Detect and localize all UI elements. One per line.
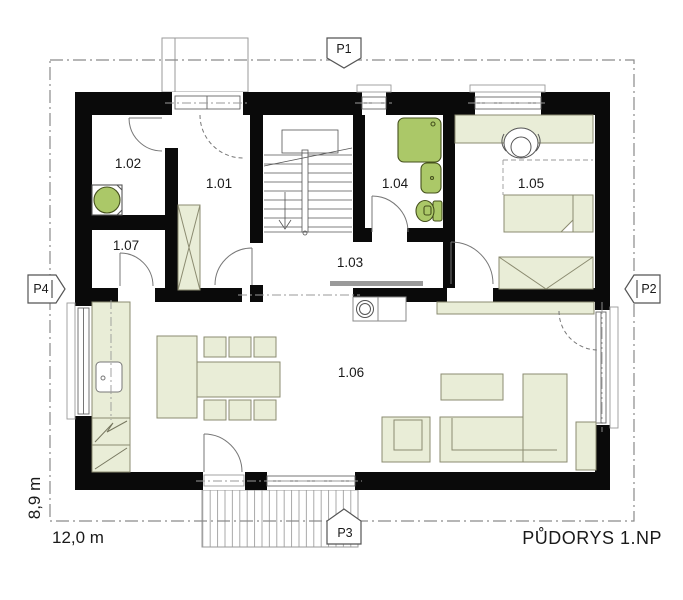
- room-label-101: 1.01: [206, 176, 232, 191]
- kitchen-tall-cabinets: [92, 418, 130, 472]
- room-label-105: 1.05: [518, 176, 544, 191]
- toilet: [416, 201, 442, 222]
- room-label-102: 1.02: [115, 156, 141, 171]
- washing-machine: [92, 185, 122, 215]
- width-dimension: 12,0 m: [52, 528, 104, 547]
- marker-p2-label: P2: [641, 282, 656, 296]
- marker-p4-label: P4: [33, 282, 48, 296]
- sliding-door-track: [330, 281, 423, 286]
- height-dimension: 8,9 m: [25, 477, 44, 520]
- entrance-frame: [175, 96, 240, 109]
- floor-plan-drawing: P1 P2 P3 P4 1.01 1.02 1.03 1.04 1.05 1.0…: [0, 0, 683, 600]
- kitchen-island: [157, 336, 197, 418]
- stove-block: [353, 297, 406, 321]
- shower: [398, 118, 441, 162]
- entrance-canopy: [162, 38, 248, 92]
- sideboard: [437, 302, 594, 314]
- armchair: [382, 417, 430, 462]
- room-label-104: 1.04: [382, 176, 409, 191]
- coffee-table: [441, 374, 503, 400]
- room-label-103: 1.03: [337, 255, 363, 270]
- bed: [504, 195, 593, 232]
- plan-title: PŮDORYS 1.NP: [522, 527, 662, 548]
- marker-p3-label: P3: [337, 526, 352, 540]
- marker-p1-label: P1: [336, 42, 351, 56]
- dining-table: [197, 362, 280, 397]
- room-label-107: 1.07: [113, 238, 139, 253]
- tv-bench: [576, 422, 596, 470]
- kitchen-sink: [96, 362, 122, 392]
- floor-plan-canvas: P1 P2 P3 P4 1.01 1.02 1.03 1.04 1.05 1.0…: [0, 0, 683, 600]
- terrace-door-frame: [204, 475, 244, 486]
- room-label-106: 1.06: [338, 365, 364, 380]
- wardrobe-bedroom: [499, 257, 593, 289]
- wardrobe-101: [178, 205, 200, 290]
